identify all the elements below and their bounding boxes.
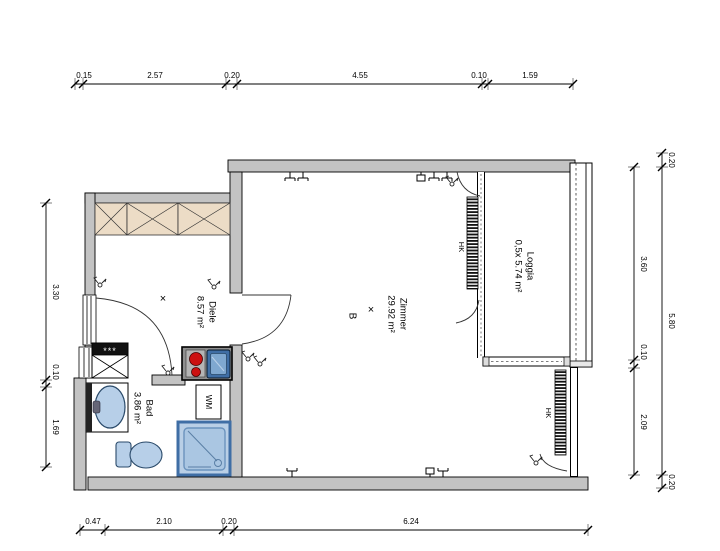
room-area-loggia: 0,5x 5.74 m² xyxy=(512,240,523,293)
wall-top-left xyxy=(85,193,238,203)
loggia-bottom-railing xyxy=(483,357,570,366)
dim-label: 2.57 xyxy=(147,71,163,80)
socket-icon xyxy=(426,468,434,477)
switch-icon xyxy=(530,455,542,465)
entrance-door-frame xyxy=(83,295,96,345)
loggia-right-railing xyxy=(570,163,592,367)
switch-icon xyxy=(254,356,266,366)
dim-label: 0.20 xyxy=(224,71,240,80)
wall-left-lower xyxy=(74,378,86,490)
switch-icon xyxy=(242,351,254,361)
wall-left-upper xyxy=(85,193,95,297)
stove-burner-icon xyxy=(190,353,203,366)
dim-label: 3.30 xyxy=(51,284,60,300)
dim-label: 5.80 xyxy=(667,313,676,329)
room-label-zimmer: Zimmer xyxy=(397,298,408,330)
room-label-loggia: Loggia xyxy=(524,252,535,281)
bath-fixtures: WM xyxy=(86,383,230,475)
dim-label: 6.24 xyxy=(403,517,419,526)
dim-label: 3.60 xyxy=(639,256,648,272)
dimension-bottom: 0.47 2.10 0.20 6.24 xyxy=(76,517,592,536)
dim-label: 4.55 xyxy=(352,71,368,80)
toilet-icon xyxy=(116,442,162,468)
room-area-zimmer: 29.92 m² xyxy=(385,295,396,333)
stove-burner-icon xyxy=(192,368,201,377)
kitchenette xyxy=(182,347,232,380)
radiator-label: HK xyxy=(457,242,466,252)
wall-bad-north-stub xyxy=(152,375,185,385)
socket-icon xyxy=(285,172,295,181)
socket-icon xyxy=(287,468,297,477)
dimension-right-inner: 3.60 0.10 2.09 xyxy=(628,163,648,479)
socket-icon xyxy=(298,172,308,181)
radiator-icon xyxy=(467,197,478,289)
washing-machine: WM xyxy=(196,385,221,419)
center-cross: × xyxy=(160,293,166,305)
wardrobe-cabinets xyxy=(95,203,230,235)
dim-label: 0.20 xyxy=(667,474,676,490)
glass-wall-casement-arc xyxy=(456,300,479,323)
dim-label: 0.10 xyxy=(51,364,60,380)
room-area-diele: 8.57 m² xyxy=(194,296,205,328)
dimension-right-outer: 0.20 5.80 0.20 xyxy=(656,149,676,492)
washing-machine-label: WM xyxy=(204,395,213,410)
socket-icon xyxy=(429,172,439,181)
radiators: HK HK xyxy=(457,197,566,455)
radiator-icon xyxy=(555,370,566,455)
floor-plan-canvas: *** WM xyxy=(0,0,720,551)
section-marker-b: B xyxy=(346,313,357,320)
dim-label: 0.20 xyxy=(667,152,676,168)
dimension-top: 0.15 2.57 0.20 4.55 0.10 1.59 xyxy=(71,71,577,90)
dim-label: 0.20 xyxy=(221,517,237,526)
dim-label: 1.69 xyxy=(51,419,60,435)
radiator-label: HK xyxy=(544,408,553,418)
socket-icon xyxy=(417,172,425,181)
wall-bottom xyxy=(88,477,588,490)
right-window-wall xyxy=(570,367,578,477)
room-label-diele: Diele xyxy=(206,301,217,323)
room-label-bad: Bad xyxy=(143,400,154,417)
wall-diele-zimmer-upper xyxy=(230,172,242,293)
zimmer-door-arc xyxy=(242,295,291,344)
dim-label: 0.47 xyxy=(85,517,101,526)
switch-icon xyxy=(208,279,220,289)
dim-label: 1.59 xyxy=(522,71,538,80)
dim-label: 0.10 xyxy=(639,344,648,360)
dim-label: 0.10 xyxy=(471,71,487,80)
dimension-left: 3.30 0.10 1.69 xyxy=(40,199,60,471)
dim-label: 0.15 xyxy=(76,71,92,80)
switch-icon xyxy=(94,277,106,287)
dim-label: 2.10 xyxy=(156,517,172,526)
loggia-door-arc xyxy=(457,172,480,196)
window-casement-arc xyxy=(540,454,567,471)
center-cross: × xyxy=(368,304,374,316)
washbasin-icon xyxy=(86,383,128,432)
shaft-stars-label: *** xyxy=(103,346,117,356)
socket-icon xyxy=(438,468,448,477)
shower-icon xyxy=(178,422,230,475)
room-area-bad: 3.86 m² xyxy=(131,392,142,424)
installation-shaft: *** xyxy=(92,343,128,378)
dim-label: 2.09 xyxy=(639,414,648,430)
wall-top-main xyxy=(228,160,575,172)
